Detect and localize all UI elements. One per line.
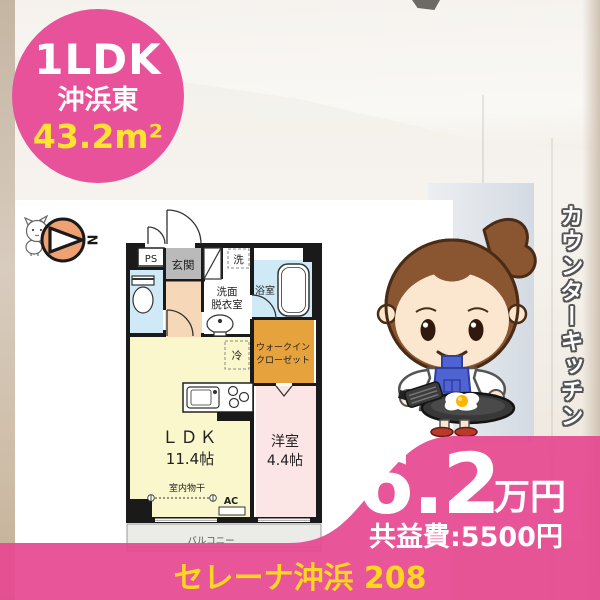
cooking-mascot (372, 210, 540, 438)
listing-image: N バルコニー (0, 0, 600, 600)
rent-amount: 6.2 (356, 442, 499, 526)
ps-label: PS (145, 254, 157, 265)
washroom-label-1: 洗面 (217, 286, 238, 298)
bathroom-label: 浴室 (255, 284, 275, 297)
indoor-drying-label: 室内物干 (169, 482, 205, 494)
balcony-label: バルコニー (187, 536, 234, 547)
floorplan: N バルコニー (15, 200, 345, 560)
ldk-name-label: ＬＤＫ (162, 428, 219, 448)
rent-unit: 万円 (494, 468, 566, 520)
room-hall (165, 281, 202, 337)
compass-north-label: N (84, 235, 99, 246)
compass-icon: N (42, 219, 99, 261)
fridge-label: 冷 (232, 349, 243, 362)
common-fee: 共益費:5500円 (369, 515, 563, 554)
badge-location: 沖浜東 (58, 86, 139, 116)
entrance-step (204, 248, 221, 279)
bedroom-size-label: 4.4帖 (267, 453, 303, 469)
washer-label: 洗 (233, 254, 244, 266)
photo-wall-edge (482, 95, 484, 195)
entrance-label: 玄関 (172, 258, 195, 272)
washroom-label-2: 脱衣室 (211, 298, 243, 311)
closet-label-1: ウォークイン (256, 342, 310, 353)
badge-floor-area: 43.2m² (33, 119, 163, 156)
feature-label-vertical: カウンターキッチン (552, 204, 586, 436)
property-name: セレーナ沖浜 208 (130, 553, 470, 597)
badge-layout-type: 1LDK (34, 36, 161, 83)
mascot-face (395, 272, 509, 368)
ac-label: AC (224, 496, 238, 507)
toilet-icon (132, 276, 154, 313)
bathtub-icon (278, 264, 309, 316)
property-badge: 1LDK 沖浜東 43.2m² (12, 9, 184, 183)
balcony: バルコニー (127, 524, 321, 551)
bedroom-name-label: 洋室 (271, 433, 299, 450)
ldk-size-label: 11.4帖 (166, 450, 214, 468)
closet-label-2: クローゼット (256, 354, 310, 366)
